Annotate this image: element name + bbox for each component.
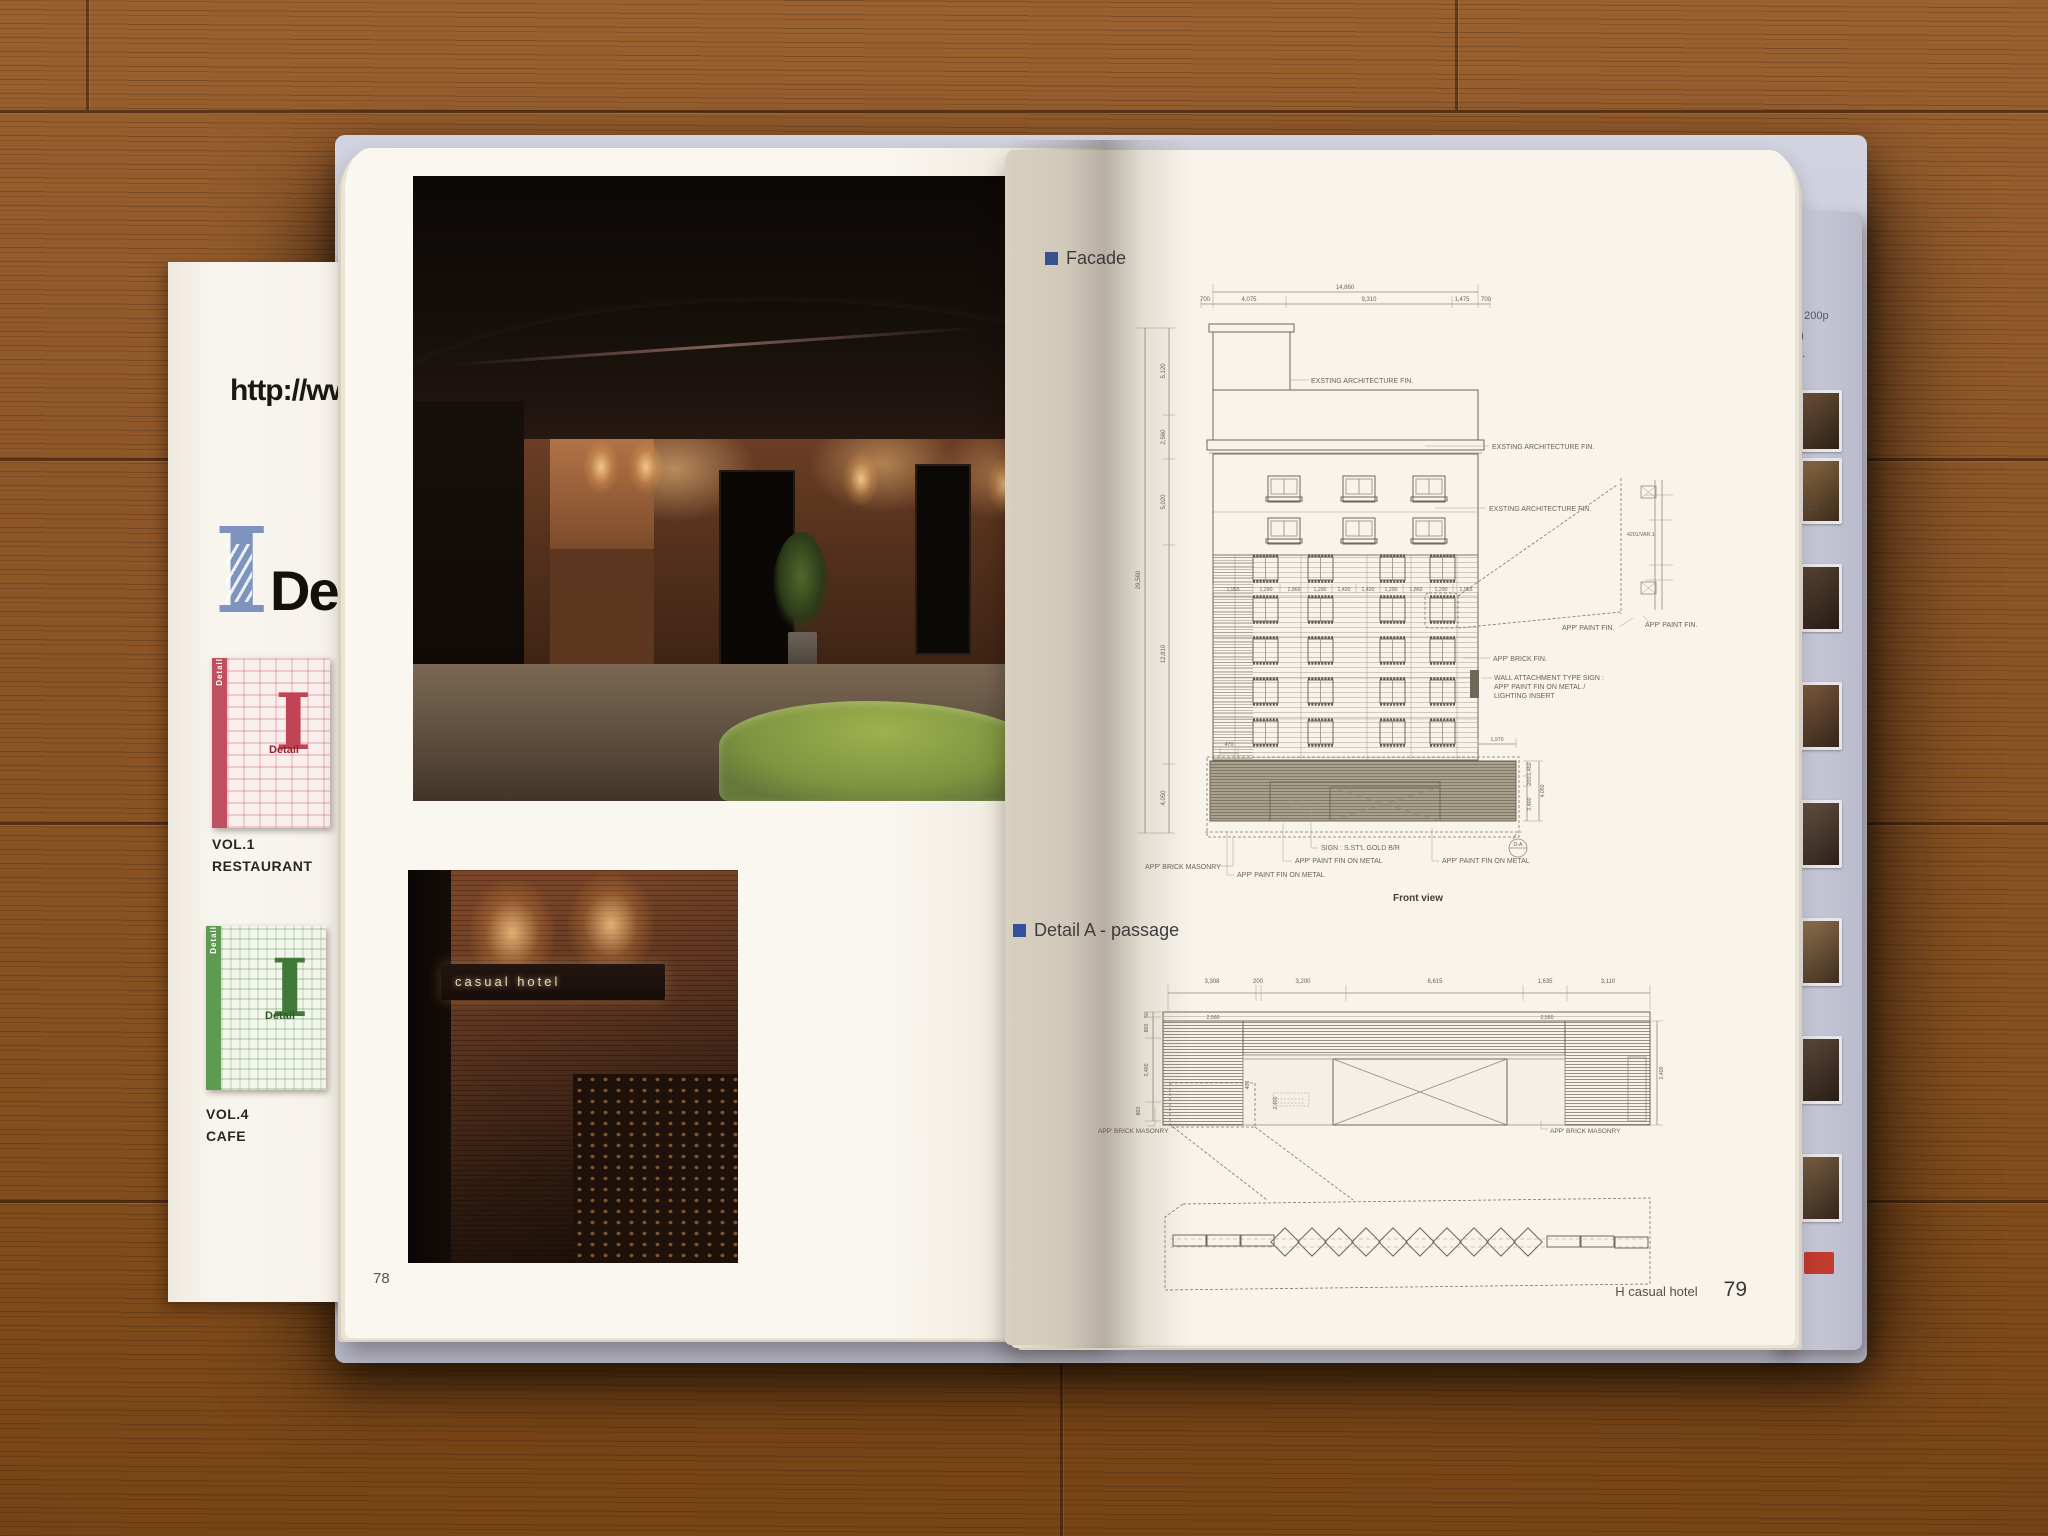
svg-text:1,635: 1,635 <box>1537 979 1553 985</box>
vol1-cover: I Detail <box>227 658 330 828</box>
svg-text:800: 800 <box>1144 1024 1150 1033</box>
wood-plank-joint <box>1455 0 1458 110</box>
perforated-brick-screen <box>573 1074 738 1263</box>
entrance-door <box>915 464 971 656</box>
svg-text:1,860: 1,860 <box>1410 587 1423 593</box>
wall-light-glow <box>843 451 879 507</box>
downlight-glow <box>583 439 619 495</box>
vol4-spine-text: Detail <box>209 926 218 954</box>
svg-text:50: 50 <box>1144 1012 1150 1018</box>
facade-building <box>1207 324 1484 760</box>
svg-text:5,020: 5,020 <box>1161 494 1167 510</box>
svg-text:1,290: 1,290 <box>1314 587 1327 593</box>
vol1-category: RESTAURANT <box>212 858 312 874</box>
vol4-number: VOL.4 <box>206 1106 249 1122</box>
book-title: H casual hotel <box>1615 1284 1697 1299</box>
svg-text:APP' PAINT FIN ON METAL: APP' PAINT FIN ON METAL <box>1442 858 1530 865</box>
url-text: http://ww <box>230 374 351 408</box>
svg-text:2,560: 2,560 <box>1541 1015 1554 1021</box>
edge-thumbnail <box>1800 1154 1842 1222</box>
detail-a-section-header: Detail A - passage <box>1013 920 1179 941</box>
hotel-sign: casual hotel <box>441 964 665 999</box>
vol4-logo-label: Detail <box>265 1010 295 1022</box>
dark-doorway <box>408 870 451 1263</box>
svg-text:1,860: 1,860 <box>1288 587 1301 593</box>
vol1-logo-label: Detail <box>269 744 299 756</box>
edge-thumbnail <box>1800 390 1842 452</box>
right-page: Facade 14,860 700 4,075 9,310 1,475 700 <box>1005 150 1795 1345</box>
wood-plank-seam <box>0 110 2048 113</box>
svg-text:EXSTING ARCHITECTURE FIN.: EXSTING ARCHITECTURE FIN. <box>1311 378 1413 385</box>
svg-text:5,120: 5,120 <box>1161 363 1167 379</box>
detail-top-dims: 3,308 200 3,200 6,615 1,635 3,110 <box>1168 979 1650 1010</box>
vol4-book-thumbnail: Detail I Detail <box>206 926 326 1090</box>
idetail-logo-i: I <box>214 512 269 630</box>
blue-square-icon <box>1013 924 1026 937</box>
svg-text:1,475: 1,475 <box>1454 297 1470 303</box>
facade-left-dims: 29,560 5,120 2,560 5,020 12,810 4,050 <box>1136 328 1175 833</box>
svg-text:APP' PAINT FIN.: APP' PAINT FIN. <box>1562 625 1614 632</box>
vol4-category: CAFE <box>206 1128 246 1144</box>
vol1-number: VOL.1 <box>212 836 255 852</box>
svg-text:29,560: 29,560 <box>1136 570 1142 589</box>
facade-section-header: Facade <box>1045 248 1126 269</box>
svg-text:2,400: 2,400 <box>1527 797 1533 810</box>
edge-note: d. <box>1796 348 1805 360</box>
detail-plan-strip <box>1165 1198 1650 1290</box>
svg-text:1,970: 1,970 <box>1491 737 1504 743</box>
svg-text:2,400: 2,400 <box>1659 1066 1665 1079</box>
front-view-caption: Front view <box>1393 893 1443 904</box>
svg-text:WALL ATTACHMENT TYPE SIGN :: WALL ATTACHMENT TYPE SIGN : <box>1494 675 1604 682</box>
left-page: casual hotel 78 <box>345 148 1110 1338</box>
svg-text:APP' BRICK MASONRY: APP' BRICK MASONRY <box>1098 1128 1169 1135</box>
svg-text:APP' PAINT FIN.: APP' PAINT FIN. <box>1645 622 1697 629</box>
svg-text:4,050: 4,050 <box>1161 790 1167 806</box>
hotel-sign-text: casual hotel <box>455 974 560 989</box>
svg-text:2,400: 2,400 <box>1273 1096 1279 1109</box>
vol1-spine: Detail <box>212 658 227 828</box>
edge-note: : 200p <box>1798 310 1829 322</box>
insert-page: http://ww I De Detail I Detail VOL.1 RES… <box>168 262 358 1302</box>
svg-text:1,955: 1,955 <box>1227 587 1240 593</box>
svg-text:9,310: 9,310 <box>1361 297 1377 303</box>
red-tab <box>1804 1252 1834 1274</box>
svg-text:4,050: 4,050 <box>1540 784 1546 797</box>
svg-text:APP' PAINT FIN ON METAL: APP' PAINT FIN ON METAL <box>1237 872 1325 879</box>
svg-text:1,290: 1,290 <box>1260 587 1273 593</box>
svg-text:200: 200 <box>1253 979 1264 985</box>
vol1-book-thumbnail: Detail I Detail <box>212 658 330 828</box>
svg-text:2,560: 2,560 <box>1207 1015 1220 1021</box>
photo-of-open-book: : 200p 0) d. 123 http://ww I De Detail I… <box>0 0 2048 1536</box>
svg-text:400: 400 <box>1245 1081 1251 1090</box>
photo-hotel-facade-night: casual hotel <box>408 870 738 1263</box>
svg-text:LIGHTING INSERT: LIGHTING INSERT <box>1494 693 1555 700</box>
svg-text:700: 700 <box>1481 297 1492 303</box>
vol4-spine: Detail <box>206 926 221 1090</box>
edge-thumbnail <box>1800 682 1842 750</box>
wood-plank-joint <box>86 0 89 110</box>
svg-text:D-A: D-A <box>1514 842 1523 848</box>
svg-text:800: 800 <box>1136 1107 1142 1116</box>
svg-text:APP' PAINT FIN ON METAL: APP' PAINT FIN ON METAL <box>1295 858 1383 865</box>
blue-square-icon <box>1045 252 1058 265</box>
svg-text:APP' BRICK MASONRY: APP' BRICK MASONRY <box>1145 864 1221 871</box>
svg-text:APP' PAINT FIN ON METAL /: APP' PAINT FIN ON METAL / <box>1494 684 1585 691</box>
svg-text:1,420: 1,420 <box>1362 587 1375 593</box>
edge-thumbnail <box>1800 458 1842 524</box>
svg-text:4,075: 4,075 <box>1241 297 1257 303</box>
svg-text:6,615: 6,615 <box>1427 979 1443 985</box>
edge-page-ref: 123 <box>1802 502 1819 513</box>
edge-note: 0) <box>1794 330 1804 342</box>
svg-text:1,290: 1,290 <box>1385 587 1398 593</box>
svg-text:14,860: 14,860 <box>1336 285 1355 291</box>
svg-text:APP' BRICK MASONRY: APP' BRICK MASONRY <box>1550 1128 1621 1135</box>
detail-elevation: 2,560 2,560 400 2,400 2,400 APP' BRICK M… <box>1098 1012 1665 1135</box>
edge-thumbnail <box>1800 918 1842 986</box>
facade-title: Facade <box>1066 248 1126 269</box>
svg-text:470: 470 <box>1225 742 1234 748</box>
detail-left-dims: 50 800 2,400 800 <box>1136 1012 1161 1121</box>
svg-text:12,810: 12,810 <box>1161 644 1167 663</box>
facade-elevation-drawing: 14,860 700 4,075 9,310 1,475 700 29,560 … <box>1125 280 1700 915</box>
edge-thumbnail <box>1800 1036 1842 1104</box>
svg-text:3,308: 3,308 <box>1204 979 1220 985</box>
svg-text:2,400: 2,400 <box>1144 1063 1150 1076</box>
svg-text:2,560: 2,560 <box>1161 429 1167 445</box>
svg-text:1,290: 1,290 <box>1435 587 1448 593</box>
idetail-logo-text: De <box>270 558 338 623</box>
page-footer: H casual hotel 79 <box>1615 1278 1747 1302</box>
vol4-cover: I Detail <box>221 926 326 1090</box>
facade-inset-detail: 4201/VAR.1 APP' PAINT FIN. <box>1621 478 1697 629</box>
detail-a-drawing: 3,308 200 3,200 6,615 1,635 3,110 50 800… <box>1095 955 1680 1300</box>
svg-text:EXSTING ARCHITECTURE FIN.: EXSTING ARCHITECTURE FIN. <box>1492 444 1594 451</box>
svg-text:1,450: 1,450 <box>1527 762 1533 775</box>
svg-text:APP' BRICK FIN.: APP' BRICK FIN. <box>1493 656 1547 663</box>
facade-top-dims: 14,860 700 4,075 9,310 1,475 700 <box>1200 284 1492 308</box>
edge-thumbnail <box>1800 800 1842 868</box>
svg-text:SIGN : S.ST'L GOLD B/R: SIGN : S.ST'L GOLD B/R <box>1321 845 1400 852</box>
photo-hotel-passage <box>413 176 1065 801</box>
vol1-spine-text: Detail <box>215 658 224 686</box>
detail-a-title: Detail A - passage <box>1034 920 1179 941</box>
svg-text:4201/VAR.1: 4201/VAR.1 <box>1627 532 1655 538</box>
svg-text:3,110: 3,110 <box>1601 979 1616 985</box>
page-number-left: 78 <box>373 1270 390 1287</box>
svg-text:700: 700 <box>1200 297 1211 303</box>
svg-text:200: 200 <box>1527 777 1533 786</box>
svg-text:1,420: 1,420 <box>1338 587 1351 593</box>
downlight-glow <box>628 439 664 495</box>
page-number-right: 79 <box>1724 1278 1747 1302</box>
edge-thumbnail <box>1800 564 1842 632</box>
svg-text:3,200: 3,200 <box>1295 979 1311 985</box>
svg-text:EXSTING ARCHITECTURE FIN.: EXSTING ARCHITECTURE FIN. <box>1489 506 1591 513</box>
